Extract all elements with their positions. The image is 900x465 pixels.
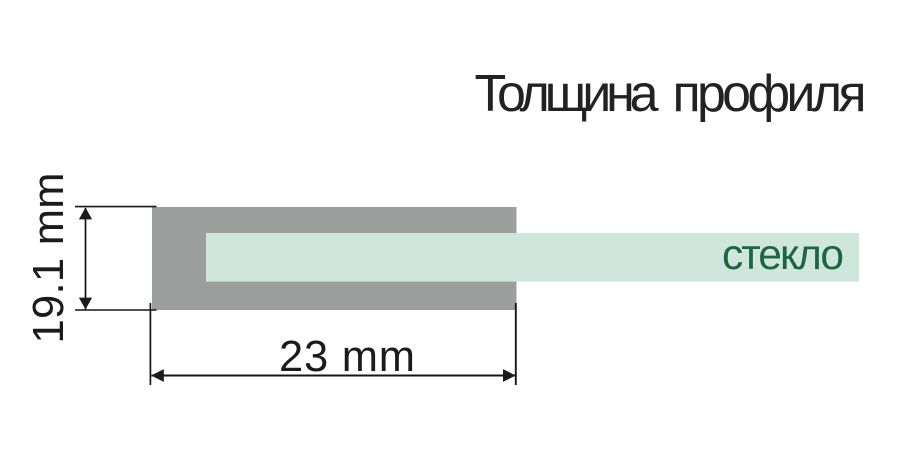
svg-text:19.1 mm: 19.1 mm: [25, 173, 73, 344]
svg-text:23 mm: 23 mm: [279, 333, 415, 381]
svg-text:стекло: стекло: [722, 232, 844, 279]
svg-text:профиля: профиля: [673, 65, 867, 123]
svg-text:Толщина: Толщина: [475, 65, 659, 123]
